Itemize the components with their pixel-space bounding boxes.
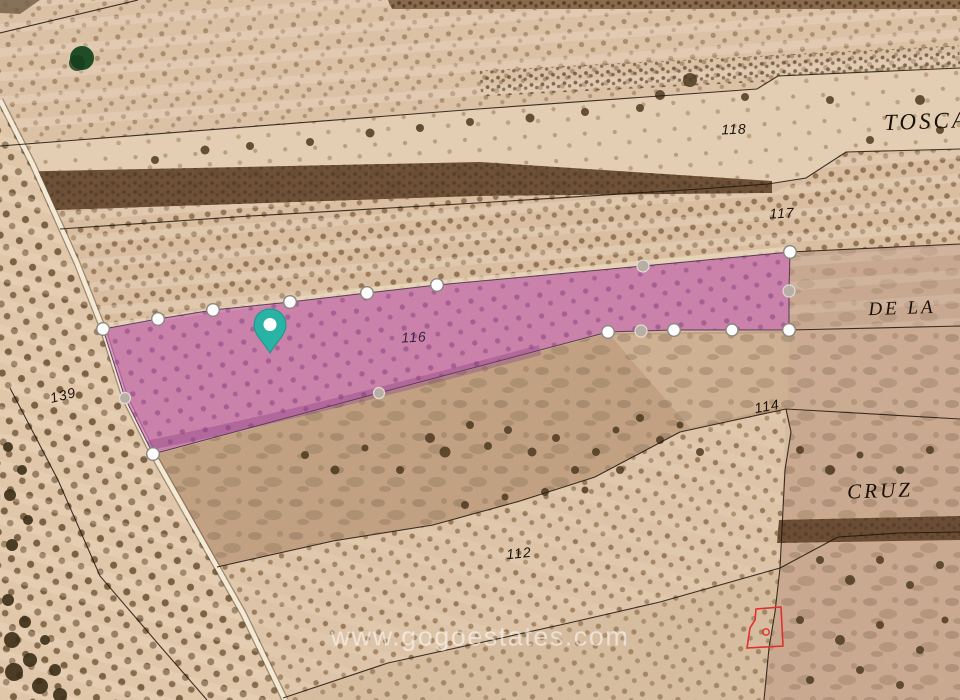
vertex-handle[interactable] [668, 324, 681, 337]
map-viewport[interactable]: 118 117 116 114 139 112 TOSCARE DE LA CR… [0, 0, 960, 700]
watermark: www.gogoestates.com [331, 622, 630, 653]
vertex-handle[interactable] [147, 448, 160, 461]
vertex-handle[interactable] [207, 304, 220, 317]
pin-hole [264, 318, 277, 331]
place-label-de-la: DE LA [868, 297, 936, 321]
parcel-label-116: 116 [401, 328, 427, 345]
vertex-handle-mid[interactable] [374, 388, 385, 399]
field-114 [786, 326, 960, 419]
vertex-handle-mid[interactable] [120, 393, 131, 404]
vertex-handle-mid[interactable] [637, 260, 649, 272]
vertex-handle[interactable] [783, 324, 796, 337]
location-pin[interactable] [250, 307, 290, 355]
satellite-imagery [0, 0, 960, 700]
vertex-handle-mid[interactable] [783, 285, 795, 297]
vertex-handle[interactable] [726, 324, 738, 336]
vertex-handle[interactable] [431, 279, 444, 292]
vertex-handle[interactable] [152, 313, 165, 326]
vertex-handle[interactable] [602, 326, 615, 339]
place-label-cruz: CRUZ [847, 477, 914, 504]
parcel-label-118: 118 [721, 121, 747, 138]
vertex-handle-mid[interactable] [635, 325, 647, 337]
vertex-handle[interactable] [97, 323, 110, 336]
parcel-label-112: 112 [506, 544, 533, 563]
place-label-toscar: TOSCARE [884, 106, 960, 136]
vertex-handle[interactable] [784, 246, 797, 259]
vertex-handle[interactable] [361, 287, 374, 300]
parcel-label-117: 117 [769, 204, 795, 221]
